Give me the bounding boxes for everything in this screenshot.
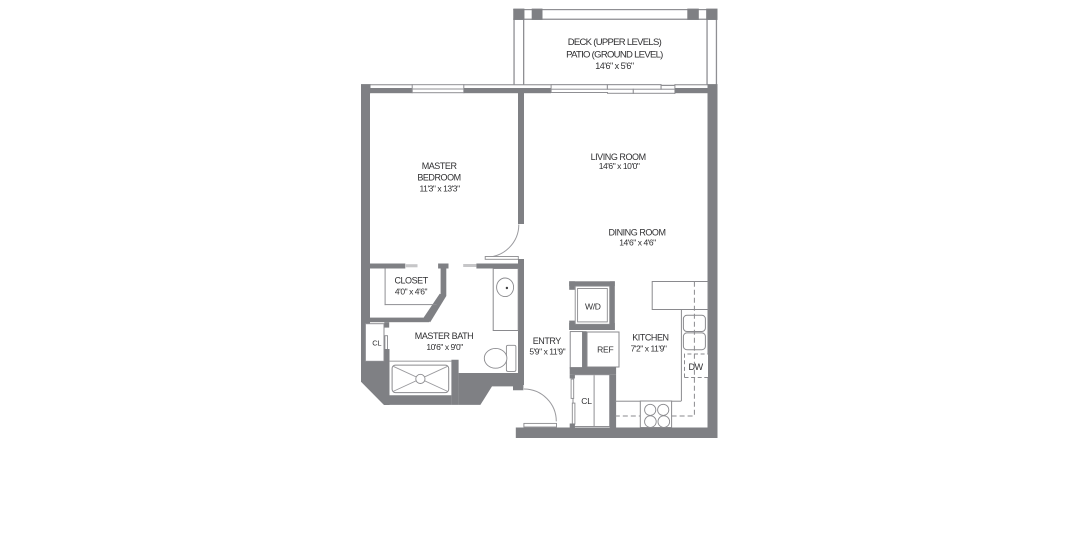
svg-text:14'6" x 10'0": 14'6" x 10'0" [599,161,640,171]
svg-text:BEDROOM: BEDROOM [417,173,460,183]
svg-text:7'2" x 11'9": 7'2" x 11'9" [631,344,667,354]
svg-text:MASTER BATH: MASTER BATH [415,331,473,341]
svg-text:10'6" x 9'0": 10'6" x 9'0" [426,342,463,352]
svg-text:KITCHEN: KITCHEN [632,332,668,342]
svg-text:DW: DW [688,362,703,372]
svg-text:MASTER: MASTER [422,161,458,171]
svg-text:5'9" x 11'9": 5'9" x 11'9" [529,346,565,356]
svg-text:CL: CL [581,396,592,406]
svg-text:REF: REF [597,345,613,355]
svg-text:14'6" x 5'6": 14'6" x 5'6" [595,61,634,71]
svg-text:CL: CL [372,338,381,347]
svg-text:DINING ROOM: DINING ROOM [608,227,665,237]
svg-text:PATIO (GROUND LEVEL): PATIO (GROUND LEVEL) [566,50,663,61]
svg-text:11'3" x 13'3": 11'3" x 13'3" [420,184,461,194]
svg-text:ENTRY: ENTRY [533,336,562,346]
svg-text:4'0" x 4'6": 4'0" x 4'6" [395,287,428,297]
svg-text:14'6" x 4'6": 14'6" x 4'6" [619,238,656,248]
svg-text:W/D: W/D [585,302,601,312]
svg-text:CLOSET: CLOSET [394,275,428,285]
svg-text:DECK (UPPER LEVELS): DECK (UPPER LEVELS) [568,37,662,48]
